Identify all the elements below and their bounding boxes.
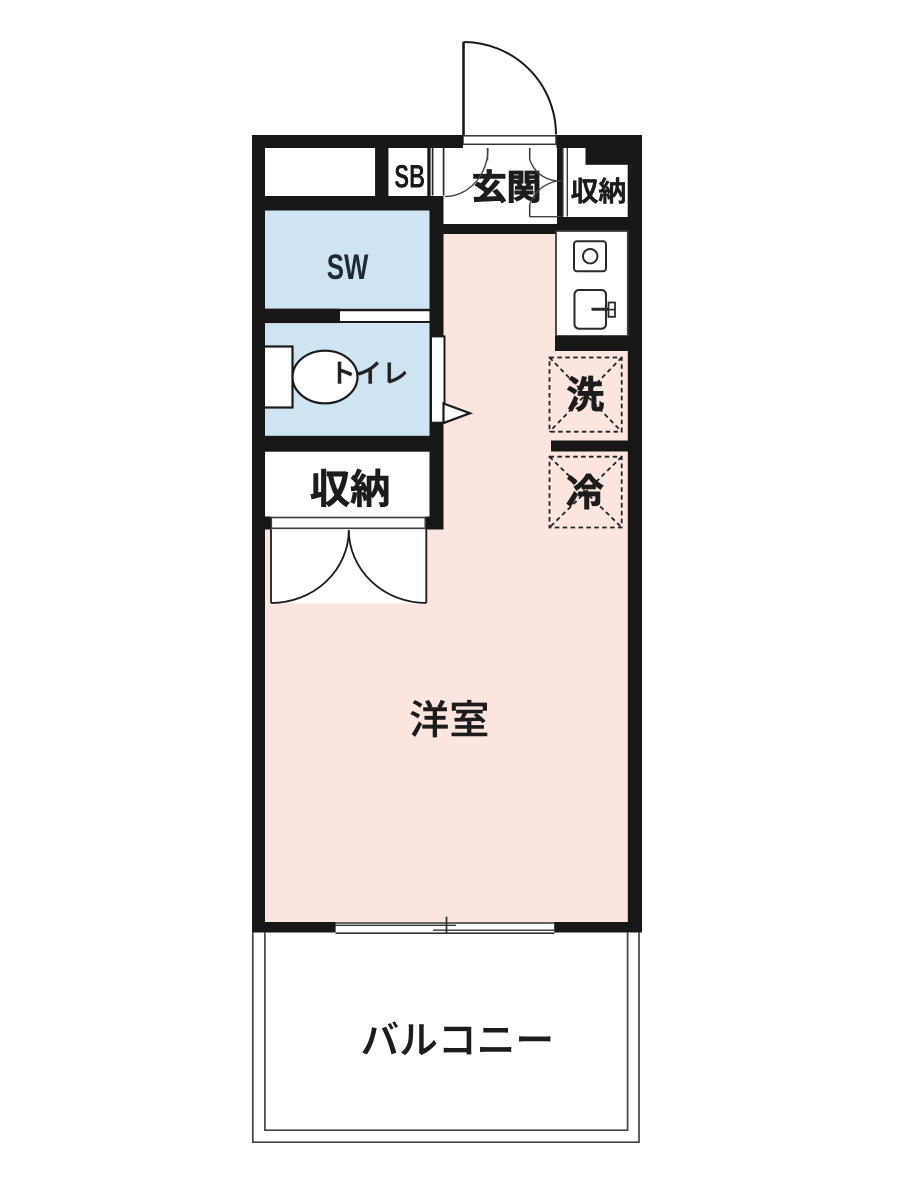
svg-text:SB: SB	[394, 159, 425, 195]
svg-text:SW: SW	[327, 248, 369, 287]
